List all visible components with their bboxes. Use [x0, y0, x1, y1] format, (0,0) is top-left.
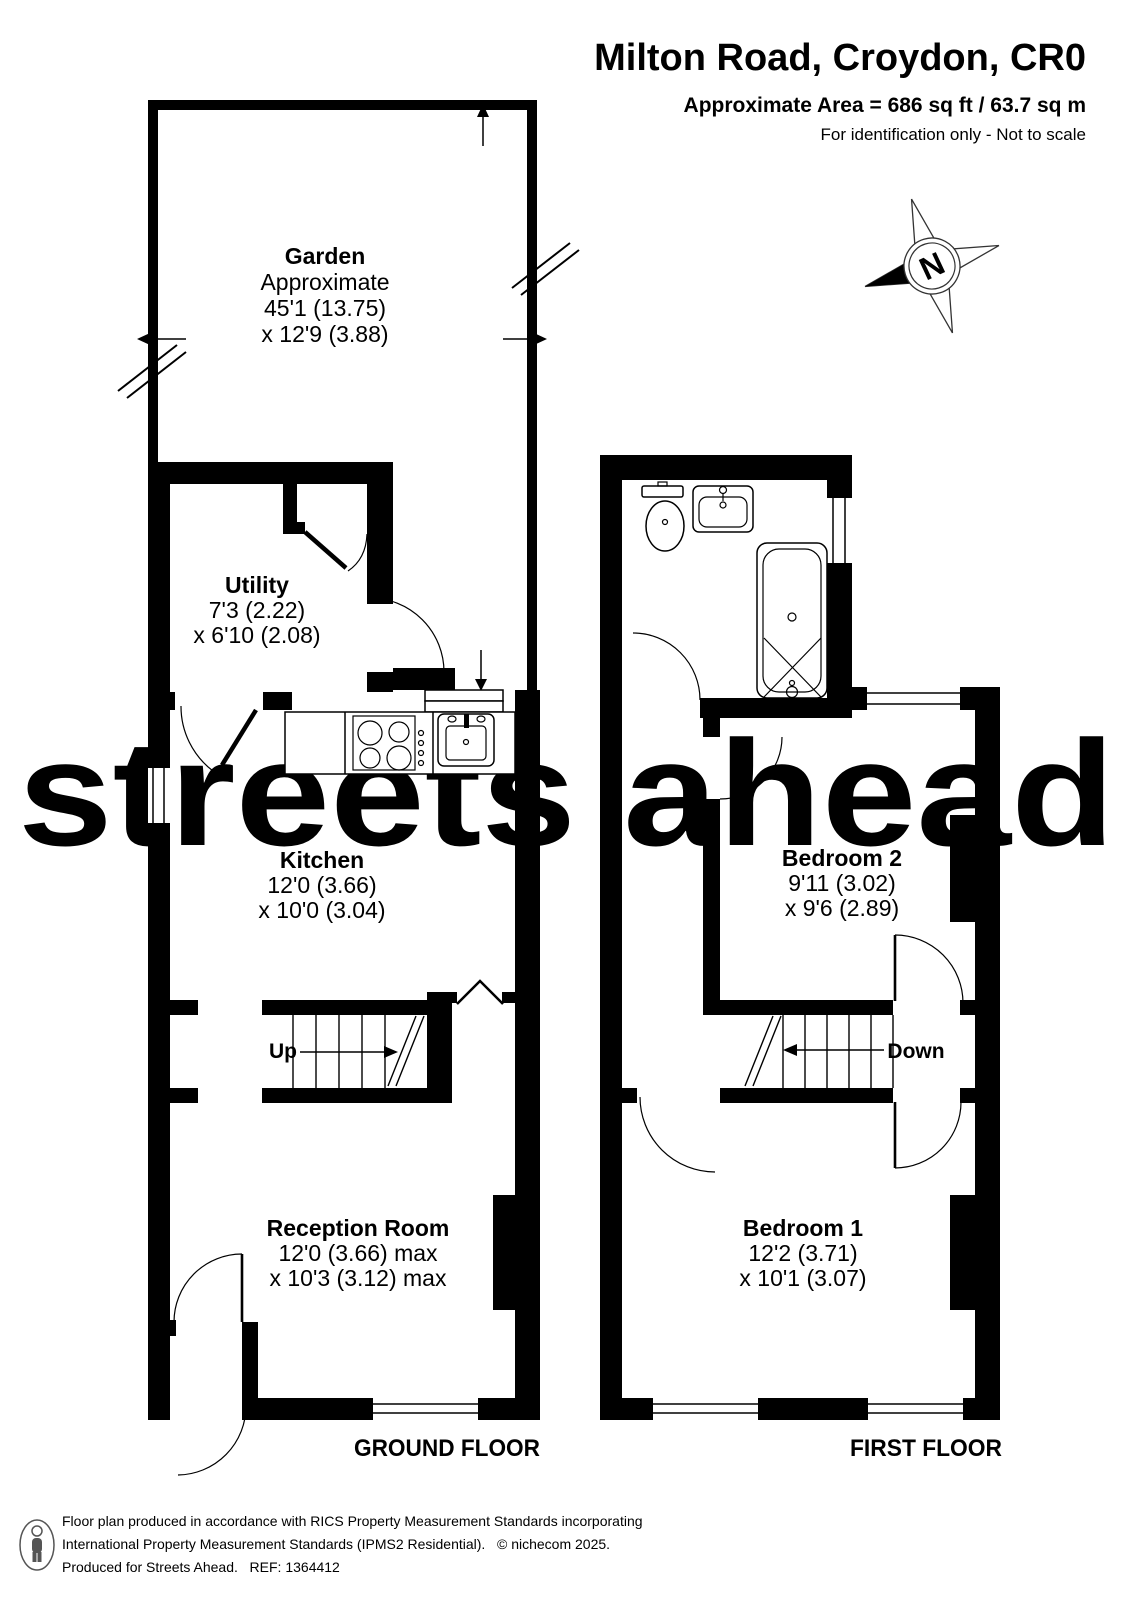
bedroom1-name: Bedroom 1 — [743, 1215, 863, 1241]
bathroom-window — [827, 498, 852, 563]
floor-plan-drawing: streets ahead — [0, 0, 1131, 1599]
kitchen-sink-icon — [438, 714, 494, 766]
utility-dim-1: 7'3 (2.22) — [209, 597, 305, 623]
footer-line-2: International Property Measurement Stand… — [62, 1536, 610, 1552]
reception-dim-2: x 10'3 (3.12) max — [270, 1265, 447, 1291]
footer-line-3: Produced for Streets Ahead. REF: 1364412 — [62, 1559, 340, 1575]
garden-name: Garden — [285, 243, 366, 269]
ground-floor-label: GROUND FLOOR — [354, 1435, 540, 1462]
kitchen-dim-2: x 10'0 (3.04) — [258, 897, 385, 923]
footer-line-1: Floor plan produced in accordance with R… — [62, 1513, 643, 1529]
kitchen-name: Kitchen — [280, 847, 364, 873]
stairs-down-label: Down — [887, 1040, 944, 1063]
bedroom2-name: Bedroom 2 — [782, 845, 902, 871]
stairs-up-label: Up — [269, 1040, 297, 1063]
bedroom1-dim-2: x 10'1 (3.07) — [739, 1265, 866, 1291]
bedroom1-dim-1: 12'2 (3.71) — [748, 1240, 857, 1266]
bedroom2-dim-2: x 9'6 (2.89) — [785, 895, 899, 921]
reception-label: Reception Room 12'0 (3.66) max x 10'3 (3… — [267, 1215, 450, 1291]
bedroom1-window-left — [653, 1398, 758, 1420]
utility-name: Utility — [225, 572, 289, 598]
bedroom2-dim-1: 9'11 (3.02) — [788, 870, 896, 896]
bedroom2-window — [867, 687, 960, 710]
garden-dim-1: Approximate — [260, 269, 389, 295]
kitchen-window — [148, 768, 170, 823]
back-door-step — [425, 690, 503, 712]
reception-dim-1: 12'0 (3.66) max — [278, 1240, 438, 1266]
garden-dim-2: 45'1 (13.75) — [264, 295, 386, 321]
utility-dim-2: x 6'10 (2.08) — [193, 622, 320, 648]
garden-dim-3: x 12'9 (3.88) — [261, 321, 388, 347]
area-subtitle: Approximate Area = 686 sq ft / 63.7 sq m — [684, 94, 1086, 117]
bedroom1-window-right — [868, 1398, 963, 1420]
first-floor-label: FIRST FLOOR — [850, 1435, 1002, 1462]
bedroom1-label: Bedroom 1 12'2 (3.71) x 10'1 (3.07) — [739, 1215, 866, 1291]
floor-plan-page: streets ahead — [0, 0, 1131, 1599]
basin-icon — [693, 486, 753, 532]
reception-window — [373, 1398, 478, 1420]
reception-name: Reception Room — [267, 1215, 450, 1241]
bathtub-icon — [757, 543, 827, 698]
kitchen-dim-1: 12'0 (3.66) — [267, 872, 376, 898]
scale-disclaimer: For identification only - Not to scale — [820, 125, 1086, 144]
bedroom2-label: Bedroom 2 9'11 (3.02) x 9'6 (2.89) — [782, 845, 902, 921]
page-title: Milton Road, Croydon, CR0 — [594, 37, 1086, 79]
